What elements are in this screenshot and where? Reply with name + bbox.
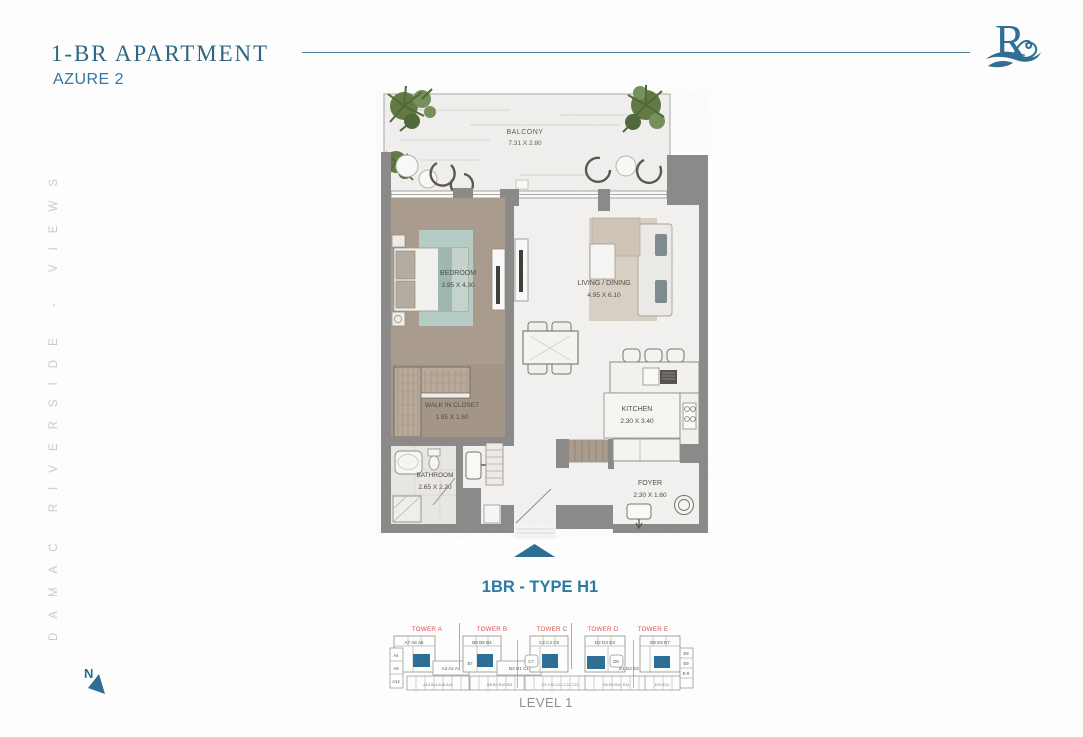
svg-text:A13 A14 A15 A16: A13 A14 A15 A16 <box>423 683 453 687</box>
svg-text:A7 A6 A5: A7 A6 A5 <box>405 640 424 645</box>
svg-text:D8 D9 D10 D11: D8 D9 D10 D11 <box>603 683 630 687</box>
svg-text:B5 B5 B4: B5 B5 B4 <box>472 640 492 645</box>
svg-text:C3 C4 C5: C3 C4 C5 <box>539 640 560 645</box>
svg-text:E10 E11: E10 E11 <box>655 683 669 687</box>
svg-text:TOWER A: TOWER A <box>412 626 443 633</box>
svg-text:E9: E9 <box>683 661 689 666</box>
svg-text:A4: A4 <box>393 653 399 658</box>
svg-text:LEVEL 1: LEVEL 1 <box>519 695 573 710</box>
svg-text:TOWER B: TOWER B <box>477 626 508 633</box>
svg-text:TOWER C: TOWER C <box>536 626 567 633</box>
svg-text:A3 A2 A1: A3 A2 A1 <box>442 666 461 671</box>
svg-text:A12: A12 <box>392 679 400 684</box>
svg-text:E5 E6 E7: E5 E6 E7 <box>650 640 670 645</box>
svg-text:A9: A9 <box>393 666 399 671</box>
svg-text:E1 E2 E3: E1 E2 E3 <box>619 666 639 671</box>
svg-text:B8 B9 B10 B11: B8 B9 B10 B11 <box>487 683 513 687</box>
svg-text:1BR - TYPE H1: 1BR - TYPE H1 <box>482 578 598 596</box>
svg-text:TOWER D: TOWER D <box>587 626 618 633</box>
svg-text:D6: D6 <box>613 659 619 664</box>
svg-text:E9: E9 <box>683 651 689 656</box>
svg-text:C9 C10 C11 C12 C13: C9 C10 C11 C12 C13 <box>542 683 579 687</box>
svg-text:B7: B7 <box>467 661 473 666</box>
svg-text:C7: C7 <box>528 659 534 664</box>
svg-text:D2 D3 D4: D2 D3 D4 <box>595 640 616 645</box>
svg-text:E-9: E-9 <box>683 671 690 676</box>
svg-text:TOWER E: TOWER E <box>638 626 669 633</box>
